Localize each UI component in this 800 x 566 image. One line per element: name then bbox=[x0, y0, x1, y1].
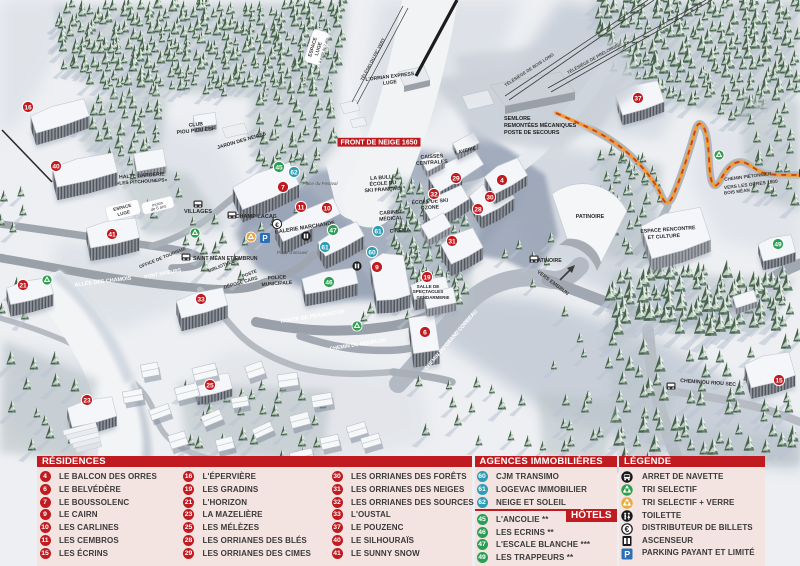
svg-text:P: P bbox=[624, 549, 630, 559]
svg-text:4: 4 bbox=[500, 177, 504, 184]
svg-text:31: 31 bbox=[448, 238, 456, 245]
svg-text:SPECTACLES: SPECTACLES bbox=[413, 289, 444, 294]
svg-text:€: € bbox=[625, 523, 630, 533]
svg-text:PATINOIRE: PATINOIRE bbox=[576, 214, 605, 220]
svg-text:15: 15 bbox=[775, 377, 783, 384]
svg-text:47: 47 bbox=[329, 227, 337, 234]
svg-text:16: 16 bbox=[24, 104, 32, 111]
svg-text:7: 7 bbox=[281, 184, 285, 191]
svg-text:61: 61 bbox=[321, 244, 329, 251]
svg-text:25: 25 bbox=[206, 382, 214, 389]
svg-text:€: € bbox=[275, 222, 279, 229]
svg-text:10: 10 bbox=[323, 205, 331, 212]
svg-text:REMONTÉES MÉCANIQUES: REMONTÉES MÉCANIQUES bbox=[504, 121, 577, 129]
svg-text:46: 46 bbox=[325, 279, 333, 286]
svg-text:62: 62 bbox=[290, 169, 298, 176]
svg-text:29: 29 bbox=[452, 175, 460, 182]
svg-text:41: 41 bbox=[108, 231, 116, 238]
svg-text:49: 49 bbox=[774, 241, 782, 248]
svg-text:60: 60 bbox=[368, 249, 376, 256]
svg-text:33: 33 bbox=[197, 296, 205, 303]
svg-text:11: 11 bbox=[298, 204, 305, 211]
svg-text:SEMLORE: SEMLORE bbox=[504, 116, 531, 122]
svg-text:VILLAGES: VILLAGES bbox=[184, 209, 212, 215]
svg-text:32: 32 bbox=[430, 191, 438, 198]
svg-text:Place du Festival: Place du Festival bbox=[303, 181, 339, 186]
svg-text:P: P bbox=[262, 234, 268, 243]
svg-text:Place d'accueil: Place d'accueil bbox=[277, 250, 308, 255]
svg-text:45: 45 bbox=[275, 164, 283, 171]
svg-text:30: 30 bbox=[486, 194, 494, 201]
svg-text:61: 61 bbox=[374, 228, 382, 235]
svg-text:POSTE DE SECOURS: POSTE DE SECOURS bbox=[504, 130, 560, 136]
svg-text:23: 23 bbox=[83, 397, 91, 404]
svg-text:9: 9 bbox=[375, 264, 379, 271]
svg-text:40: 40 bbox=[52, 163, 60, 170]
svg-text:28: 28 bbox=[474, 206, 482, 213]
svg-text:19: 19 bbox=[423, 274, 431, 281]
svg-text:GENDARMERIE: GENDARMERIE bbox=[417, 295, 450, 300]
svg-text:37: 37 bbox=[634, 95, 642, 102]
svg-text:CHAMP LACAS: CHAMP LACAS bbox=[235, 214, 276, 220]
svg-text:6: 6 bbox=[423, 329, 427, 336]
svg-text:FRONT DE NEIGE 1650: FRONT DE NEIGE 1650 bbox=[340, 140, 417, 147]
svg-text:21: 21 bbox=[19, 282, 27, 289]
